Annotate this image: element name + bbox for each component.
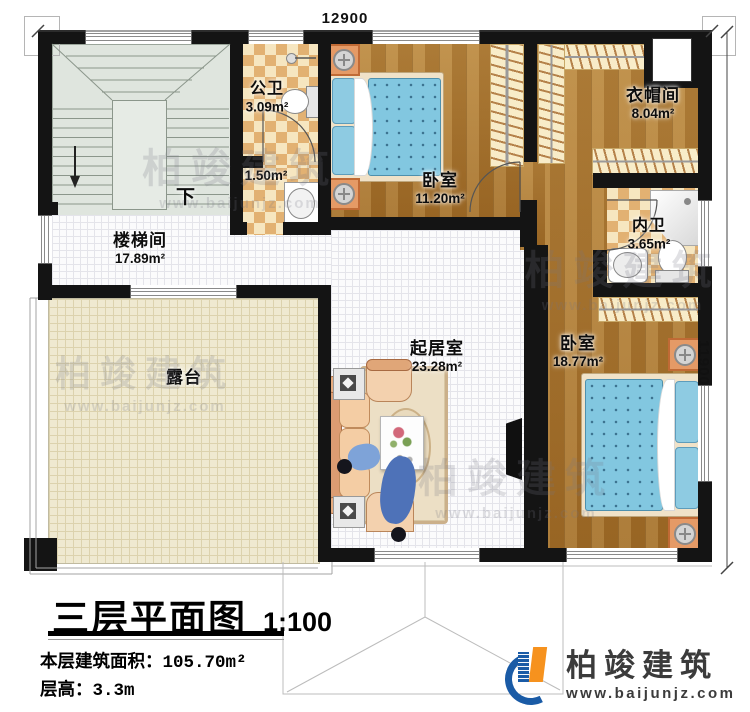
window-hallway [38,215,52,264]
bed-right-mattress [585,379,663,511]
wall-living-suite [524,245,548,548]
terrace-floor [48,298,320,564]
label-stair-hall: 楼梯间 17.89m² [113,231,167,267]
window-bedroom-top [372,30,480,44]
label-public-bath: 公卫 3.09m² [246,81,289,116]
dimension-top: 12900 [322,10,369,27]
window-public-bath [248,30,304,44]
floor-area-row: 本层建筑面积：105.70m² [40,648,247,673]
wardrobe-cloakroom-bottom [592,148,700,175]
label-bedroom-top: 卧室 11.20m² [415,171,465,207]
brand-name: 柏竣建筑 [566,640,735,685]
wardrobe-cloakroom-west [538,44,565,164]
title-underline-thin [48,639,284,640]
floor-height-value: 3.3m [93,681,135,701]
stair-landing [112,100,167,210]
wall-stair-bath [230,44,243,235]
wall-anteroom-bottom-right [283,222,331,235]
wall-bedroom-cloakroom [524,30,537,162]
window-living-south [374,548,480,562]
shower-drain-icon [684,198,691,205]
tv-icon [506,418,522,480]
window-innerbath [698,200,712,267]
brand-logo: 柏竣建筑 www.baijunjz.com [505,640,735,702]
floor-area-label: 本层建筑面积： [40,651,163,671]
niche [652,38,692,82]
wall-anteroom-bottom-left [230,222,247,235]
dimension-right: 11900 [695,340,712,386]
bed-top-pillow-2 [332,126,356,175]
wall-bath-bedroom [318,44,331,230]
label-anteroom: 1.50m² [245,168,288,184]
window-bedroom-right-south [566,548,678,562]
wall-bottom-2 [478,548,566,562]
wall-left-lower [38,262,52,300]
person-head [337,459,352,474]
window-terrace-door [130,285,237,298]
person-head [391,527,406,542]
nightstand [328,178,360,210]
label-stair-down: 下 [176,187,196,209]
armchair-top-back [366,359,412,371]
wall-stair-corner [38,202,58,215]
wall-bottom-1 [331,548,374,562]
title-underline [48,631,284,636]
label-inner-bath: 内卫 3.65m² [628,218,671,253]
label-bedroom-right: 卧室 18.77m² [553,334,603,370]
wall-living-terrace [318,292,331,562]
wall-bath-divider [243,156,263,168]
shower-head-icon [286,53,297,64]
floor-area-value: 105.70m² [163,653,247,673]
wall-terrace-top-left [52,285,130,298]
wardrobe-bedroom-top [490,44,524,167]
wall-innerbath-bottom [593,283,698,297]
bed-right-sheet [657,379,675,511]
brand-url: www.baijunjz.com [566,685,735,702]
wall-left [38,30,52,215]
bed-right-pillow-2 [675,447,699,509]
nightstand [668,517,701,550]
terrace-column [24,538,57,571]
brand-logo-icon [505,644,557,698]
floor-plan-canvas: 楼梯间 17.89m² 公卫 3.09m² 1.50m² 卧室 11.20m² … [0,0,750,707]
floor-height-label: 层高： [40,679,93,699]
wall-cloakroom-bath [593,173,698,188]
wardrobe-bedroom-right [598,297,700,322]
label-living: 起居室 23.28m² [410,339,464,375]
inner-sink-bowl [613,252,642,278]
wall-bedroom-top-bottom [331,217,524,230]
toilet-tank-inner [655,270,689,283]
bed-top-pillow-1 [332,78,356,124]
wall-bottom-3 [676,548,712,562]
window-bedroom-right [698,385,712,482]
bed-right-pillow-1 [675,381,699,443]
nightstand [328,44,360,76]
label-terrace: 露台 [166,368,202,388]
wardrobe-cloakroom-top [564,44,646,70]
wall-terrace-top-right [235,285,331,298]
stair-steps-right [165,100,229,213]
label-cloakroom: 衣帽间 8.04m² [626,86,680,122]
window-stairwell [85,30,192,44]
floor-height-row: 层高：3.3m [40,676,135,701]
bed-top-mattress [368,78,441,176]
stair-steps-left [53,100,112,213]
washbasin-bowl [287,188,315,219]
